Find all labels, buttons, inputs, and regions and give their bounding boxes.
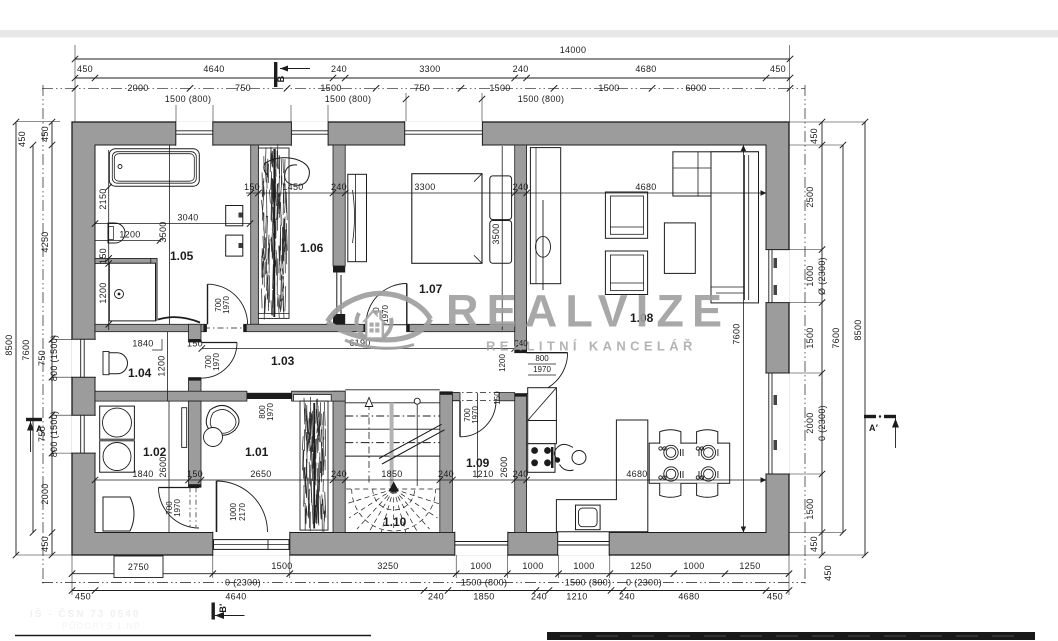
- svg-text:A′: A′: [869, 423, 878, 433]
- svg-text:2650: 2650: [250, 469, 271, 479]
- svg-text:1.03: 1.03: [271, 354, 295, 368]
- svg-text:450: 450: [809, 128, 819, 144]
- svg-text:2150: 2150: [98, 188, 108, 209]
- svg-text:2170: 2170: [238, 503, 247, 521]
- svg-text:1970: 1970: [266, 403, 275, 421]
- svg-text:150: 150: [187, 339, 203, 349]
- svg-text:240: 240: [531, 592, 547, 602]
- svg-text:IŠ - ČSN 73 0540: IŠ - ČSN 73 0540: [30, 607, 140, 620]
- svg-text:1200: 1200: [119, 230, 140, 240]
- svg-text:3250: 3250: [377, 561, 398, 571]
- svg-text:B: B: [276, 75, 286, 82]
- svg-text:1500: 1500: [805, 498, 815, 519]
- svg-text:PŮDORYS 1.NP: PŮDORYS 1.NP: [62, 620, 141, 631]
- svg-text:240: 240: [438, 469, 454, 479]
- svg-text:1.01: 1.01: [245, 445, 269, 459]
- svg-text:0 (2300): 0 (2300): [626, 578, 662, 588]
- svg-text:1970: 1970: [533, 365, 551, 374]
- svg-text:8500: 8500: [4, 334, 14, 355]
- svg-text:4680: 4680: [678, 592, 699, 602]
- svg-text:1500: 1500: [489, 83, 510, 93]
- svg-text:1840: 1840: [132, 339, 153, 349]
- svg-text:450: 450: [40, 536, 50, 552]
- svg-text:3300: 3300: [419, 64, 440, 74]
- svg-text:450: 450: [823, 565, 833, 581]
- svg-text:1.05: 1.05: [170, 249, 194, 263]
- svg-text:2500: 2500: [805, 186, 815, 207]
- svg-text:0 (2300): 0 (2300): [817, 405, 827, 441]
- svg-text:800 (1500): 800 (1500): [49, 335, 59, 382]
- svg-text:750: 750: [37, 350, 47, 366]
- svg-text:750: 750: [414, 83, 430, 93]
- svg-text:1000: 1000: [805, 265, 815, 286]
- svg-text:450: 450: [77, 64, 93, 74]
- svg-text:240: 240: [331, 182, 347, 192]
- svg-text:2750: 2750: [128, 562, 149, 572]
- svg-text:2600: 2600: [499, 456, 509, 477]
- svg-text:1970: 1970: [212, 353, 221, 371]
- svg-text:7600: 7600: [21, 339, 31, 360]
- svg-text:1970: 1970: [471, 406, 480, 424]
- svg-text:1000: 1000: [573, 561, 594, 571]
- svg-text:240: 240: [513, 469, 529, 479]
- svg-text:1250: 1250: [630, 561, 651, 571]
- svg-text:1000: 1000: [229, 503, 238, 521]
- svg-text:450: 450: [17, 131, 27, 147]
- svg-text:450: 450: [40, 126, 50, 142]
- svg-text:240: 240: [513, 182, 529, 192]
- svg-text:800: 800: [535, 354, 549, 363]
- svg-text:1500 (800): 1500 (800): [165, 94, 212, 104]
- svg-text:Ø (2300): Ø (2300): [817, 257, 827, 295]
- svg-text:B′: B′: [218, 603, 228, 612]
- svg-text:150: 150: [98, 248, 108, 264]
- svg-text:1000: 1000: [683, 561, 704, 571]
- svg-text:4680: 4680: [626, 469, 647, 479]
- svg-text:2000: 2000: [805, 412, 815, 433]
- svg-text:1850: 1850: [473, 592, 494, 602]
- svg-text:REALVIZE: REALVIZE: [446, 286, 734, 337]
- svg-text:1200: 1200: [498, 354, 507, 372]
- svg-text:4680: 4680: [635, 182, 656, 192]
- svg-text:1250: 1250: [739, 561, 760, 571]
- svg-text:2000: 2000: [127, 83, 148, 93]
- svg-text:1210: 1210: [566, 592, 587, 602]
- svg-text:1500 (800): 1500 (800): [565, 578, 612, 588]
- svg-text:4680: 4680: [635, 64, 656, 74]
- svg-text:3500: 3500: [158, 221, 168, 242]
- svg-text:450: 450: [770, 64, 786, 74]
- svg-text:1500: 1500: [598, 83, 619, 93]
- svg-text:150: 150: [493, 391, 502, 405]
- svg-text:1970: 1970: [173, 499, 182, 517]
- svg-text:2600: 2600: [158, 456, 168, 477]
- svg-text:3300: 3300: [414, 182, 435, 192]
- svg-text:450: 450: [75, 592, 91, 602]
- svg-text:1450: 1450: [282, 182, 303, 192]
- svg-text:450: 450: [767, 592, 783, 602]
- svg-text:240: 240: [331, 64, 347, 74]
- svg-text:1500: 1500: [271, 561, 292, 571]
- svg-text:3500: 3500: [491, 223, 501, 244]
- svg-text:REALITNÍ KANCELÁŘ: REALITNÍ KANCELÁŘ: [486, 339, 697, 354]
- svg-text:1.04: 1.04: [128, 366, 152, 380]
- svg-text:8500: 8500: [853, 319, 863, 340]
- svg-text:240: 240: [428, 592, 444, 602]
- svg-text:240: 240: [513, 64, 529, 74]
- svg-text:1840: 1840: [132, 469, 153, 479]
- svg-text:1200: 1200: [98, 282, 108, 303]
- svg-text:1500 (800): 1500 (800): [461, 578, 508, 588]
- svg-text:A: A: [36, 424, 43, 434]
- svg-text:450: 450: [809, 536, 819, 552]
- svg-text:1000: 1000: [470, 561, 491, 571]
- svg-text:3040: 3040: [177, 213, 198, 223]
- svg-text:14000: 14000: [560, 45, 587, 55]
- svg-text:1500: 1500: [320, 83, 341, 93]
- svg-text:1210: 1210: [472, 469, 493, 479]
- svg-text:1000: 1000: [522, 561, 543, 571]
- svg-text:240: 240: [331, 469, 347, 479]
- svg-text:750: 750: [235, 83, 251, 93]
- svg-text:1200: 1200: [157, 355, 167, 376]
- svg-text:150: 150: [244, 182, 260, 192]
- svg-text:150: 150: [187, 469, 203, 479]
- svg-text:1500 (800): 1500 (800): [518, 94, 565, 104]
- svg-text:1970: 1970: [222, 296, 231, 314]
- svg-text:800 (1500): 800 (1500): [49, 411, 59, 458]
- svg-text:1500 (800): 1500 (800): [325, 94, 372, 104]
- svg-text:4640: 4640: [203, 64, 224, 74]
- svg-text:6000: 6000: [685, 83, 706, 93]
- svg-text:240: 240: [619, 592, 635, 602]
- svg-text:1.06: 1.06: [300, 241, 324, 255]
- svg-text:1.07: 1.07: [419, 282, 443, 296]
- svg-text:4640: 4640: [225, 592, 246, 602]
- svg-text:2000: 2000: [40, 483, 50, 504]
- svg-text:4250: 4250: [40, 231, 50, 252]
- svg-text:7600: 7600: [831, 327, 841, 348]
- svg-text:1850: 1850: [381, 469, 402, 479]
- svg-text:0 (2300): 0 (2300): [225, 578, 261, 588]
- svg-text:1500: 1500: [805, 327, 815, 348]
